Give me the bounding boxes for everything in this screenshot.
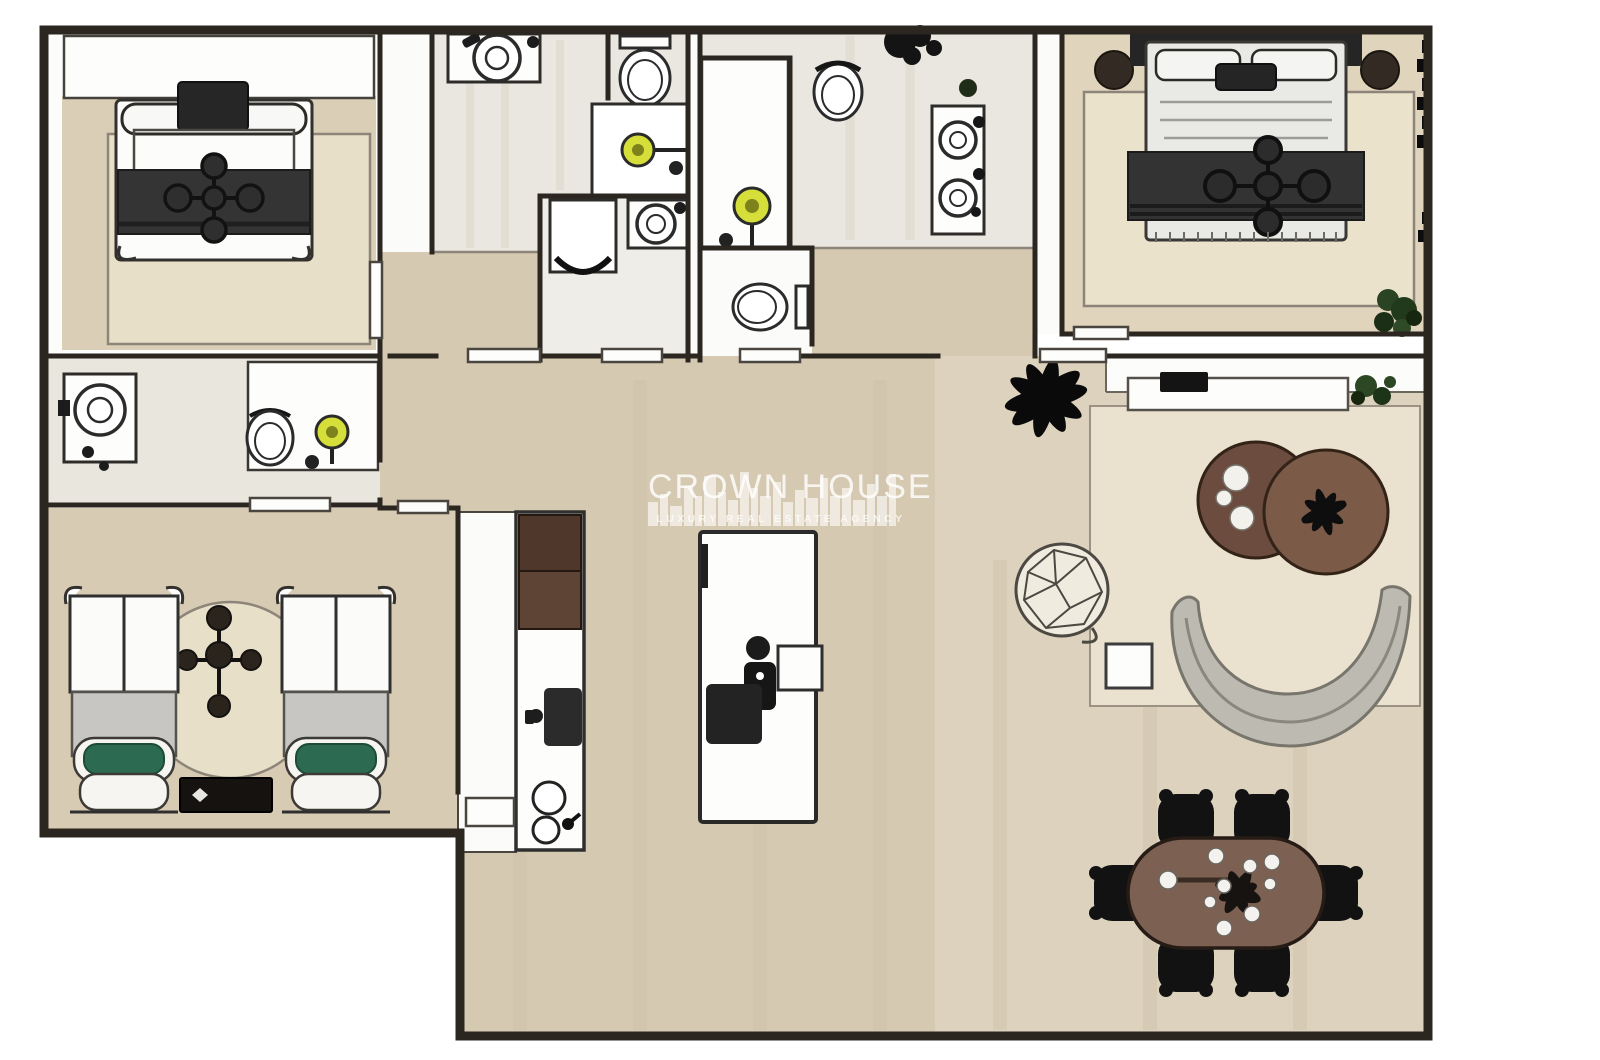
island-side-box	[778, 646, 822, 690]
island-edge-detail	[701, 544, 708, 588]
island-faucet	[746, 636, 770, 660]
kitchen-island	[700, 532, 822, 822]
island-cooktop	[706, 684, 762, 744]
island-sink-drain	[756, 672, 764, 680]
kitchen-island-overlay	[0, 0, 1600, 1060]
floor-plan-canvas: CROWN HOUSE LUXURY REAL ESTATE AGENCY	[0, 0, 1600, 1060]
